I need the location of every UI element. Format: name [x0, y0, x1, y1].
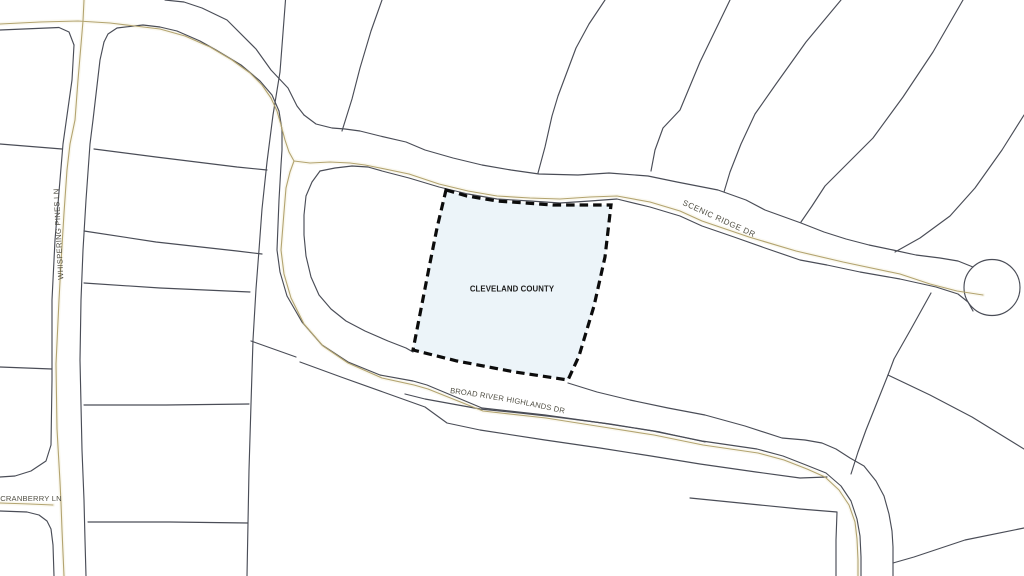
svg-text:CRANBERRY LN: CRANBERRY LN — [0, 494, 62, 503]
svg-text:CLEVELAND COUNTY: CLEVELAND COUNTY — [470, 285, 555, 294]
